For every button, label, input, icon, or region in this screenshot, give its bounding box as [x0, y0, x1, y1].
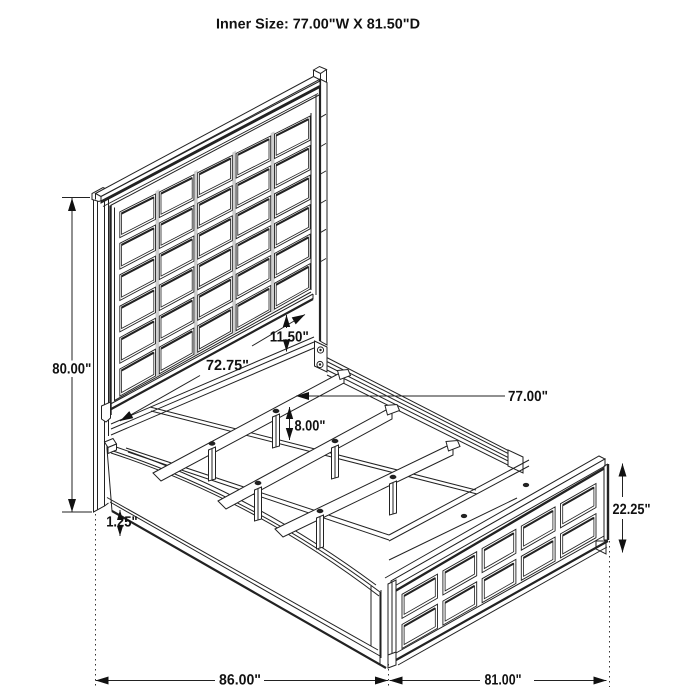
svg-text:22.25": 22.25"	[613, 502, 651, 518]
svg-text:77.00": 77.00"	[508, 389, 548, 405]
svg-text:80.00": 80.00"	[52, 362, 91, 378]
svg-text:81.00": 81.00"	[485, 673, 522, 689]
svg-text:1.25": 1.25"	[106, 515, 138, 531]
svg-text:86.00": 86.00"	[219, 673, 261, 689]
svg-text:8.00": 8.00"	[295, 419, 326, 435]
svg-text:72.75": 72.75"	[206, 358, 249, 374]
svg-text:Inner Size: 77.00"W X 81.50"D: Inner Size: 77.00"W X 81.50"D	[216, 16, 420, 32]
svg-text:11.50": 11.50"	[270, 330, 309, 346]
